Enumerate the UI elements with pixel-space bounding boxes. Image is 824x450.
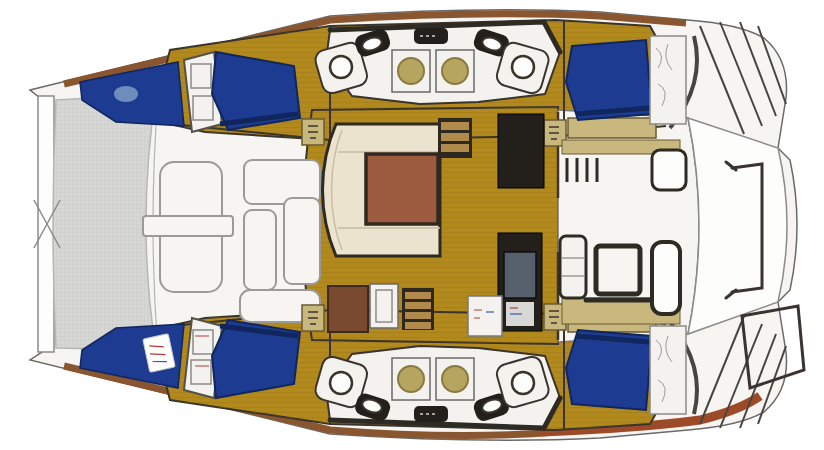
aft-platform (688, 118, 787, 334)
shower-basin (442, 366, 468, 392)
aft-counter (568, 118, 656, 138)
head-starboard (313, 22, 560, 104)
trampoline-area (34, 94, 156, 352)
steps-down-port (402, 288, 434, 330)
shower-basin (398, 366, 424, 392)
foredeck-sofa-right (284, 198, 320, 284)
foredeck-sofa-left (244, 210, 276, 290)
foredeck-lounge-bar (143, 216, 233, 236)
toilet-bowl (330, 372, 352, 394)
berth-pillow (114, 86, 138, 102)
helm-seat (652, 150, 686, 190)
toilet-bowl (512, 56, 534, 78)
head-port (313, 346, 560, 428)
salon-cabinet (328, 286, 368, 332)
cockpit-bench-side (652, 242, 680, 314)
cockpit-console (560, 236, 586, 298)
salon-table (366, 154, 438, 224)
toilet-bowl (330, 56, 352, 78)
steps-up-starboard (438, 118, 472, 158)
berth-head-panel (650, 326, 686, 414)
deck-hatch (414, 28, 448, 44)
toilet-bowl (512, 372, 534, 394)
floor-plan-canvas (0, 0, 824, 450)
fridge (468, 296, 502, 336)
galley-cabinet-upper (498, 114, 544, 188)
trampoline-mesh (53, 94, 156, 350)
tv-screen (504, 252, 536, 298)
forward-crossbeam (38, 96, 54, 352)
shower-basin (442, 58, 468, 84)
shower-basin (398, 58, 424, 84)
catamaran-floor-plan (0, 0, 824, 450)
berth-head-panel (650, 36, 686, 124)
deck-hatch (414, 406, 448, 422)
